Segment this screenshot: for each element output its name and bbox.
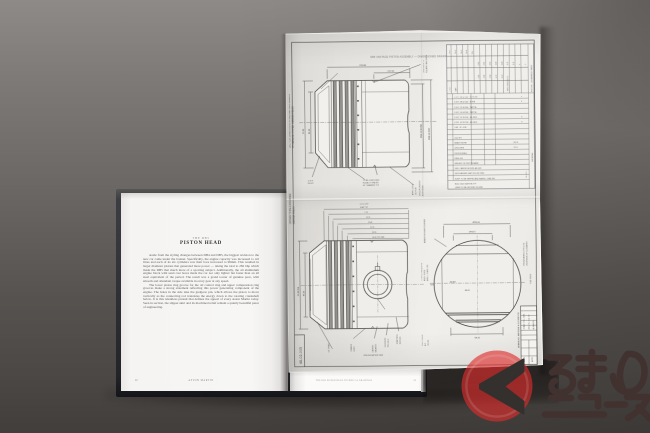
svg-text:No.1: No.1 <box>449 49 451 53</box>
svg-text:58.42: 58.42 <box>475 337 481 339</box>
svg-text:CIRCLIP GROOVE: CIRCLIP GROOVE <box>419 179 421 195</box>
svg-text:TO BE 4 GROOVES: TO BE 4 GROOVES <box>363 179 380 181</box>
svg-text:4.12: 4.12 <box>502 74 504 78</box>
svg-text:15.75: 15.75 <box>366 217 370 219</box>
svg-text:DB5 VANTAGE PISTON ASSEMBLY —: DB5 VANTAGE PISTON ASSEMBLY — DIMENSIONE… <box>370 55 459 59</box>
svg-text:SCALE FULL SIZE: SCALE FULL SIZE <box>522 312 525 329</box>
svg-text:PIN HOLE: PIN HOLE <box>388 338 390 347</box>
svg-text:PISTON RING: PISTON RING <box>455 152 468 154</box>
svg-text:APPLY LIGHT: APPLY LIGHT <box>411 182 414 194</box>
svg-text:DIMENSION TO: DIMENSION TO <box>423 59 425 73</box>
svg-text:96.00: 96.00 <box>303 127 305 133</box>
svg-text:RING GR.: RING GR. <box>455 157 464 159</box>
svg-text:82.55: 82.55 <box>372 231 376 233</box>
svg-text:4.76 R: 4.76 R <box>308 180 314 182</box>
svg-text:25.40: 25.40 <box>368 221 372 223</box>
svg-text:68.43: 68.43 <box>465 290 470 292</box>
svg-text:GRADED: GRADED <box>350 343 353 351</box>
svg-text:0.04: 0.04 <box>478 61 480 65</box>
svg-text:1.5 KILO GMS (LB.03): 1.5 KILO GMS (LB.03) <box>421 262 423 280</box>
svg-text:RING GROOVE CL: RING GROOVE CL <box>507 75 509 91</box>
svg-text:4.12: 4.12 <box>496 74 498 78</box>
svg-text:1.88 31 0.38: 1.88 31 0.38 <box>454 127 466 129</box>
svg-text:OTHERWISE STATED. MIRROR FINIS: OTHERWISE STATED. MIRROR FINISH <box>292 105 295 147</box>
svg-text:CANNED: CANNED <box>371 344 374 352</box>
svg-text:GROOVES: GROOVES <box>454 147 464 149</box>
svg-text:0.05: 0.05 <box>490 61 492 65</box>
svg-text:ASBESTOS SHIM COVERED: ASBESTOS SHIM COVERED <box>423 218 426 243</box>
svg-text:TOL: TOL <box>472 50 474 53</box>
svg-text:7.14: 7.14 <box>364 212 367 214</box>
svg-text:229.88: 229.88 <box>359 64 366 66</box>
svg-text:Ø98.42 REF: Ø98.42 REF <box>429 127 431 140</box>
svg-text:UNDERSIDE OF CLOWARDS: UNDERSIDE OF CLOWARDS <box>525 240 528 265</box>
svg-text:1.597 48 42 140 STROKE: 1.597 48 42 140 STROKE <box>454 96 478 98</box>
svg-text:2.08: 2.08 <box>484 74 486 78</box>
svg-text:MATERIAL: MATERIAL <box>531 152 534 161</box>
svg-text:FILLET: FILLET <box>308 182 315 184</box>
svg-text:Ø96.00 BORE: Ø96.00 BORE <box>421 123 423 138</box>
svg-text:Ø96.00: Ø96.00 <box>473 221 481 223</box>
svg-text:157.63: 157.63 <box>387 70 394 72</box>
svg-text:OIL FILM: OIL FILM <box>415 187 417 195</box>
svg-text:CROWN ANNEX LITTLE OIL: CROWN ANNEX LITTLE OIL <box>522 242 525 265</box>
svg-text:GUDGEON: GUDGEON <box>385 337 387 347</box>
svg-text:2.08: 2.08 <box>490 74 492 78</box>
svg-text:SNAP RING: SNAP RING <box>396 333 399 343</box>
svg-text:96.50 TYP. REF: 96.50 TYP. REF <box>372 236 384 238</box>
svg-text:2.08: 2.08 <box>478 74 480 78</box>
svg-text:0.05: 0.05 <box>484 61 486 65</box>
svg-text:DRG. No. 6.01.7.8: DRG. No. 6.01.7.8 <box>528 314 530 329</box>
svg-text:ARR. L. PLATE .051: ARR. L. PLATE .051 <box>426 264 429 280</box>
svg-text:OIL DRAIN: OIL DRAIN <box>327 342 330 352</box>
svg-text:No.2: No.2 <box>455 49 457 53</box>
svg-text:A. MARTIN: A. MARTIN <box>532 319 535 329</box>
svg-text:LINES TO BE GROUND ROUND: LINES TO BE GROUND ROUND <box>455 186 484 188</box>
svg-text:No.4: No.4 <box>466 49 468 53</box>
svg-text:Ø93.67: Ø93.67 <box>469 231 476 233</box>
svg-text:.051.63: .051.63 <box>428 339 430 345</box>
svg-text:96.00 DIA: 96.00 DIA <box>297 286 300 296</box>
svg-text:1.597 48 42 140 BORE: 1.597 48 42 140 BORE <box>454 101 476 103</box>
svg-text:BALANCE: BALANCE <box>374 343 377 352</box>
svg-text:ASCH. EDGE: ASCH. EDGE <box>423 268 426 280</box>
svg-text:SHOT INSIDE: SHOT INSIDE <box>422 333 424 345</box>
svg-text:0.08: 0.08 <box>496 61 498 65</box>
svg-text:223 L: 223 L <box>513 147 518 149</box>
svg-text:FLAT SIDES: FLAT SIDES <box>529 272 532 283</box>
svg-text:139.62 REF: 139.62 REF <box>360 203 369 205</box>
svg-text:BOTH ENDS: BOTH ENDS <box>422 184 424 195</box>
svg-text:0.08: 0.08 <box>501 61 503 65</box>
svg-text:No.3: No.3 <box>461 49 463 53</box>
svg-text:303 S: 303 S <box>513 142 519 144</box>
svg-text:SQUARE JAW LIMITS: SQUARE JAW LIMITS <box>425 53 428 72</box>
svg-text:57.15: 57.15 <box>370 226 374 228</box>
svg-text:48.383: 48.383 <box>450 281 456 283</box>
svg-text:86.50: 86.50 <box>309 127 311 133</box>
svg-text:PISTON – CLEARANCE TABLE: PISTON – CLEARANCE TABLE <box>530 64 533 92</box>
